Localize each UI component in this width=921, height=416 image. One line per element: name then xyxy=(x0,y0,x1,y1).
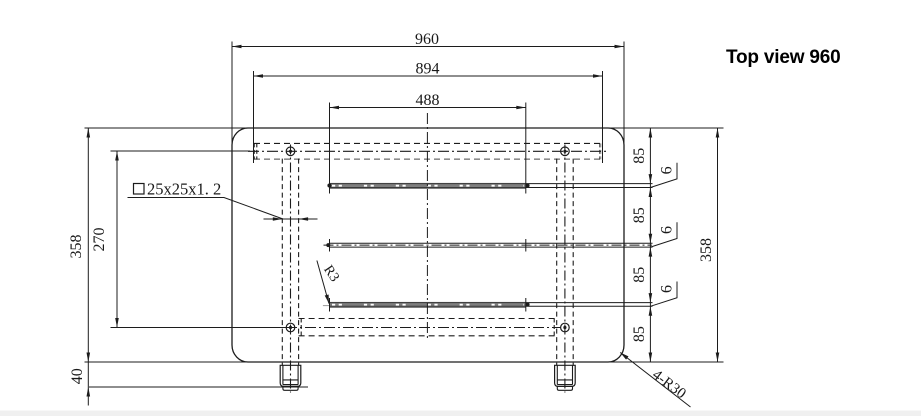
svg-text:270: 270 xyxy=(91,228,108,252)
svg-text:488: 488 xyxy=(416,92,440,109)
svg-text:85: 85 xyxy=(631,267,648,283)
svg-text:6: 6 xyxy=(659,226,676,234)
svg-text:358: 358 xyxy=(68,235,85,259)
svg-text:40: 40 xyxy=(69,368,86,384)
svg-text:960: 960 xyxy=(415,31,439,48)
svg-text:Top view 960: Top view 960 xyxy=(726,47,840,68)
svg-text:6: 6 xyxy=(659,166,676,174)
svg-text:25x25x1. 2: 25x25x1. 2 xyxy=(147,180,221,199)
svg-text:358: 358 xyxy=(698,238,715,262)
svg-text:85: 85 xyxy=(631,207,648,223)
svg-text:85: 85 xyxy=(631,148,648,164)
svg-text:6: 6 xyxy=(659,285,676,293)
svg-text:85: 85 xyxy=(631,326,648,342)
svg-text:894: 894 xyxy=(416,61,440,78)
